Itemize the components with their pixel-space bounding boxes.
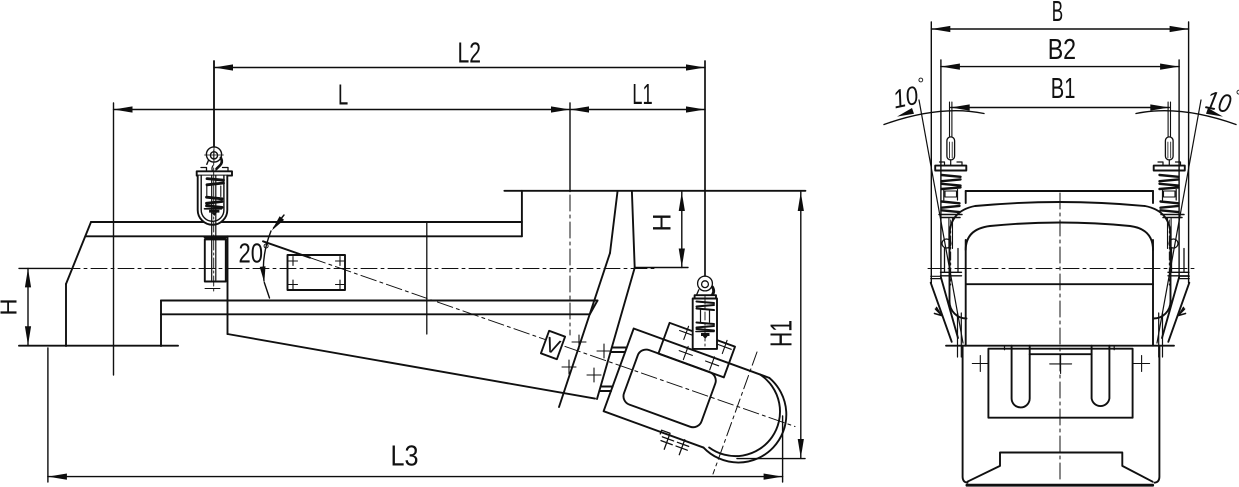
svg-text:H: H <box>0 299 22 316</box>
svg-text:B2: B2 <box>1048 34 1076 66</box>
svg-text:°: ° <box>263 241 270 261</box>
svg-text:H1: H1 <box>764 320 799 347</box>
svg-text:B1: B1 <box>1051 73 1076 105</box>
svg-text:H: H <box>649 214 677 232</box>
svg-text:L2: L2 <box>458 38 482 70</box>
svg-text:20: 20 <box>239 238 264 269</box>
svg-text:B: B <box>1052 0 1063 28</box>
svg-text:L: L <box>338 79 348 111</box>
svg-text:L3: L3 <box>391 441 419 473</box>
svg-text:L1: L1 <box>632 79 652 111</box>
